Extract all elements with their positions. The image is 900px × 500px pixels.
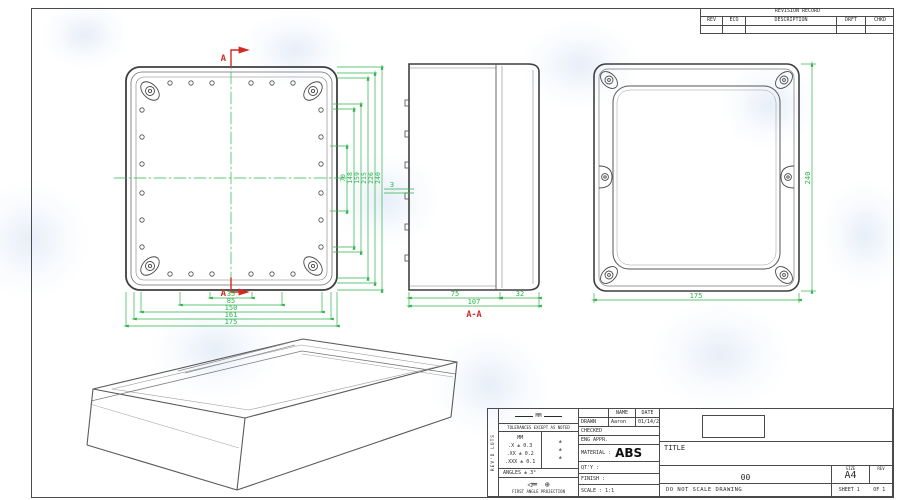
title-label: TITLE — [660, 441, 892, 466]
dim-label: 175 — [225, 318, 238, 326]
tolerance-row: .XX ± 0.2 — [507, 450, 534, 458]
rev-cell — [701, 26, 723, 34]
drft-cell — [837, 26, 866, 34]
no-scale-note: DO NOT SCALE DRAWING — [660, 484, 832, 496]
size-value: A4 — [844, 471, 856, 481]
material-label: MATERIAL : — [581, 450, 611, 456]
title-block: REV'D LOTS MM TOLERANCES EXCEPT AS NOTED… — [487, 408, 893, 497]
section-label-bottom: A — [221, 289, 227, 299]
eco-col-header: ECO — [723, 17, 746, 25]
tol-col-header: MM — [517, 434, 523, 442]
material-value: ABS — [615, 447, 642, 459]
description-cell — [746, 26, 837, 34]
side-strip-label: REV'D LOTS — [491, 434, 496, 471]
units-arrow-right — [544, 416, 562, 417]
projection-symbols: ◁═ ⊕ — [527, 481, 549, 489]
projection-label: FIRST ANGLE PROJECTION — [512, 489, 565, 494]
dim-label: 175 — [690, 292, 703, 300]
section-cut-line — [231, 50, 247, 292]
dim-label: 32 — [516, 290, 524, 298]
logo-box — [702, 415, 765, 438]
tol-mark: ± — [559, 438, 562, 446]
rev-label: REV — [877, 466, 884, 471]
drft-col-header: DRFT — [837, 17, 866, 25]
qty-label: QT'Y : — [579, 462, 659, 474]
blank-header — [579, 409, 609, 417]
eng-appr-label: ENG APPR. — [579, 436, 659, 444]
of-label: OF 1 — [873, 487, 885, 493]
perimeter-holes — [140, 81, 323, 276]
rev-col-header: REV — [701, 17, 723, 25]
revision-record-title: REVISION RECORD — [701, 8, 894, 16]
dim-label: 240 — [804, 172, 812, 185]
angles-tolerance: ANGLES ± 3° — [499, 469, 578, 478]
back-view: 240 175 — [594, 64, 816, 303]
front-view-side-dims: 70 148 159 215 226 240 — [330, 67, 384, 290]
scale-label: SCALE : 1:1 — [579, 485, 659, 496]
tol-mark: ± — [559, 454, 562, 462]
dim-label: 3 — [390, 181, 394, 189]
checked-label: CHECKED — [579, 427, 659, 435]
section-view: 3 75 32 107 A-A — [384, 64, 539, 320]
tolerance-block: MM TOLERANCES EXCEPT AS NOTED MM .X ± 0.… — [499, 409, 579, 496]
cone-symbol-icon: ◁═ — [527, 481, 537, 489]
eco-cell — [723, 26, 746, 34]
target-symbol-icon: ⊕ — [545, 481, 550, 489]
tolerance-note: TOLERANCES EXCEPT AS NOTED — [499, 424, 578, 432]
revision-record-table: REVISION RECORD REV ECO DESCRIPTION DRFT… — [700, 8, 894, 34]
units-arrow-left — [515, 416, 533, 417]
name-header: NAME — [609, 409, 636, 417]
drawn-date: 01/14/2015 — [636, 418, 659, 426]
sheet-label: SHEET 1 — [839, 487, 860, 493]
front-view: A A — [114, 50, 348, 299]
tolerance-row: .X ± 0.3 — [508, 442, 532, 450]
tol-mark: ± — [559, 446, 562, 454]
dim-label: 240 — [374, 172, 382, 184]
units-label: MM — [535, 413, 541, 419]
isometric-view — [87, 339, 457, 490]
chkd-cell — [866, 26, 894, 34]
drawn-label: DRAWN — [579, 418, 609, 426]
drawing-rev-number: 00 — [660, 466, 832, 483]
dim-label: 75 — [451, 290, 459, 298]
dim-label: 107 — [468, 298, 481, 306]
chkd-col-header: CHKD — [866, 17, 894, 25]
description-col-header: DESCRIPTION — [746, 17, 837, 25]
date-header: DATE — [636, 409, 659, 417]
drawn-name: Aaron — [609, 418, 636, 426]
tolerance-row: .XXX ± 0.1 — [505, 458, 535, 466]
front-view-bottom-dims: 35 85 150 161 175 — [126, 290, 337, 326]
drawing-sheet: A A 35 85 150 161 175 — [0, 0, 900, 500]
side-strip: REV'D LOTS — [488, 409, 499, 496]
section-view-label: A-A — [466, 310, 481, 320]
title-area: TITLE 00 SIZE A4 REV DO NOT SCALE DRAWIN… — [660, 409, 892, 496]
approval-block: NAME DATE DRAWN Aaron 01/14/2015 CHECKED… — [579, 409, 660, 496]
finish-label: FINISH : — [579, 474, 659, 485]
section-label-top: A — [221, 54, 227, 64]
